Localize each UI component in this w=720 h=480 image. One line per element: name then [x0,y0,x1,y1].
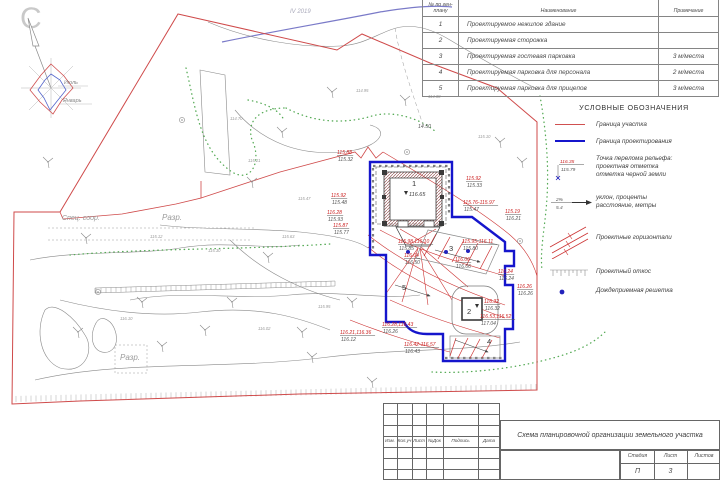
elevation-mark: 115.88115.32 [337,150,353,163]
table-row: 1Проектируемое нежилое здание [423,17,719,33]
svg-text:116.24: 116.24 [499,276,514,282]
svg-text:116.26: 116.26 [517,284,532,290]
tb-col-koluch: Кол.уч [397,436,412,446]
title-block: Изм. Кол.уч Лист №Док Подпись Дата Схема… [383,403,720,480]
legend-item-design-slope: Проектный откос [548,268,720,278]
tb-col-list: Лист [412,436,426,446]
stage-label: Стадия [621,451,654,462]
survey-point: 115.95 [318,304,331,309]
svg-text:116.35: 116.35 [560,159,575,165]
elevation-triangle [404,191,408,195]
elevation-mark: 116.06116.06 [455,257,471,270]
svg-text:115.95-116.11: 115.95-116.11 [462,239,493,245]
svg-text:115.87: 115.87 [333,223,348,229]
legend-item-design-boundary: Граница проектирования [548,138,720,146]
svg-text:116.43: 116.43 [405,349,420,355]
elevation-mark: 116.24116.24 [498,269,514,282]
survey-point: 115.47 [298,196,311,201]
svg-text:5.4: 5.4 [556,205,563,211]
lamp-icon [404,149,409,154]
svg-text:116.06: 116.06 [455,257,470,263]
svg-text:115.98,116.10: 115.98,116.10 [398,239,429,245]
road-arc [222,6,452,42]
legend-item-design-contours: Проектные горизонтали [548,221,720,259]
svg-text:116.28,116.43: 116.28,116.43 [382,322,413,328]
svg-text:116.24: 116.24 [498,269,513,275]
legend-item-storm-drain: Дождеприемная решетка [548,287,720,297]
lamp-icon [179,117,184,122]
label-razr-1: Разр. [162,213,182,222]
svg-text:115.77: 115.77 [334,230,349,236]
storm-drain-icon [548,287,592,297]
genplan-table-body: 1Проектируемое нежилое здание2Проектируе… [423,17,719,97]
survey-point: 115.63 [282,234,295,239]
svg-text:115.88: 115.88 [337,150,352,156]
table-header-note: Примечание [659,0,719,17]
label-razr-2: Разр. [120,353,140,362]
embankment-icon [548,268,592,278]
table-header-name: Наименование [459,0,659,17]
building1-elevation: 116.65 [409,192,426,198]
svg-text:116.28: 116.28 [327,210,342,216]
svg-text:115.79: 115.79 [561,167,576,173]
dimension-note: 14.50 [418,124,431,130]
svg-text:116.21,116.36: 116.21,116.36 [340,330,371,336]
red-line-icon [555,124,585,125]
svg-text:116.04: 116.04 [404,253,419,259]
survey-point: 115.10 [478,134,491,139]
survey-point: 114.70 [230,116,243,121]
area-number: 5 [402,283,406,292]
survey-note: IV 2019 [290,9,311,15]
svg-text:115.47: 115.47 [464,207,479,213]
wind-rose-july-label: Июль [64,80,78,86]
svg-text:116.53,116.52: 116.53,116.52 [480,314,511,320]
elevation-mark: 116.28,116.43116.26 [382,322,417,335]
table-row: 2Проектируемая сторожка [423,33,719,49]
svg-text:2%: 2% [555,197,564,203]
elevation-mark: 115.87115.77 [333,223,349,236]
elevation-mark: 115.19116.21 [505,209,521,222]
org-cell [500,450,620,480]
elevation-mark: 115.98,116.10115.85 [398,239,433,252]
svg-text:115.32: 115.32 [338,157,353,163]
svg-text:115.19: 115.19 [505,209,520,215]
svg-text:116.32: 116.32 [484,299,499,305]
svg-text:116.26: 116.26 [518,291,533,297]
tb-col-data: Дата [478,436,500,446]
stage-value: П [621,463,654,480]
tb-col-podpis: Подпись [443,436,478,446]
area-number: 4 [487,337,491,346]
elevation-mark: 115.92115.48 [331,193,347,206]
legend: УСЛОВНЫЕ ОБОЗНАЧЕНИЯ Граница участка Гра… [548,103,720,297]
table-row: 5Проектируемая парковка для прицепов3 м/… [423,81,719,97]
elevation-mark: 115.95-116.11115.80 [462,239,497,252]
genplan-table: № по ген-плану Наименование Примечание 1… [422,0,719,97]
svg-text:115.92: 115.92 [466,176,481,182]
elevation-mark: 116.53,116.52117.04 [480,314,515,327]
design-contours-icon [548,221,592,259]
survey-point: 115.30 [208,248,221,253]
survey-point: 116.10 [120,316,133,321]
svg-text:116.32: 116.32 [485,306,500,312]
elevation-mark: 116.04116.50 [404,253,420,266]
stage-grid: Стадия Лист Листов П 3 [620,450,720,480]
spot-elevation-icon: 116.35 115.79 [548,155,592,185]
svg-text:115.85: 115.85 [399,246,414,252]
document-title: Схема планировочной организации земельно… [500,420,720,450]
blue-line-icon [555,140,585,142]
svg-text:117.04: 117.04 [481,321,496,327]
svg-text:115.80: 115.80 [463,246,478,252]
tb-col-izm: Изм. [383,436,397,446]
area-number: 1 [412,179,416,188]
survey-point: 114.95 [356,88,369,93]
legend-item-site-boundary: Граница участка [548,121,720,129]
tb-col-ndok: №Док [426,436,443,446]
svg-text:115.48: 115.48 [332,200,347,206]
dashed-lines [48,28,424,373]
table-header-num: № по ген-плану [423,0,459,17]
svg-text:115.92: 115.92 [331,193,346,199]
svg-text:116.12: 116.12 [341,337,356,343]
table-row: 4Проектируемая парковка для персонала2 м… [423,65,719,81]
svg-text:115.76-115.97: 115.76-115.97 [463,200,495,206]
area-number: 2 [467,307,471,316]
slope-arrow-icon: 2% 5.4 [548,194,592,212]
sheet-label: Лист [654,451,687,462]
elevation-mark: 116.26116.26 [517,284,533,297]
lamp-icon [517,238,522,243]
legend-item-spot-elevation: 116.35 115.79 Точка перелома рельефа: пр… [548,155,720,185]
siteplan-sheet: С Июль Январь IV 2019 [0,0,720,480]
svg-text:116.42-116.57: 116.42-116.57 [404,342,436,348]
elevation-mark: 116.28115.93 [327,210,343,223]
survey-point: 115.21 [248,158,261,163]
north-arrow: С [20,2,51,88]
svg-text:116.06: 116.06 [456,264,471,270]
elevation-mark: 116.42-116.57116.43 [404,342,439,355]
sheet-value: 3 [654,463,687,480]
svg-text:116.21: 116.21 [506,216,521,222]
wind-rose: Июль Январь [21,58,92,118]
survey-point: 115.12 [150,234,163,239]
elevation-mark: 116.32116.32 [484,299,500,312]
wind-rose-january-label: Январь [62,98,82,104]
elevation-mark: 115.92115.33 [466,176,482,189]
table-row: 3Проектируемая гостевая парковка3 м/мест… [423,49,719,65]
svg-text:116.50: 116.50 [405,260,420,266]
legend-item-slope: 2% 5.4 уклон, проценты расстояние, метры [548,194,720,212]
area-number: 3 [449,244,453,253]
elevation-mark: 115.76-115.97115.47 [463,200,498,213]
svg-text:115.33: 115.33 [467,183,482,189]
sheets-label: Листов [687,451,720,462]
legend-title: УСЛОВНЫЕ ОБОЗНАЧЕНИЯ [548,103,720,112]
survey-point: 116.02 [258,326,271,331]
elevation-mark: 116.21,116.36116.12 [340,330,375,343]
wind-rose-july-polygon [30,64,73,114]
building-1: 116.65 [376,167,446,246]
label-spec-soor: Спец. соор. [62,215,100,222]
svg-text:116.26: 116.26 [383,329,398,335]
